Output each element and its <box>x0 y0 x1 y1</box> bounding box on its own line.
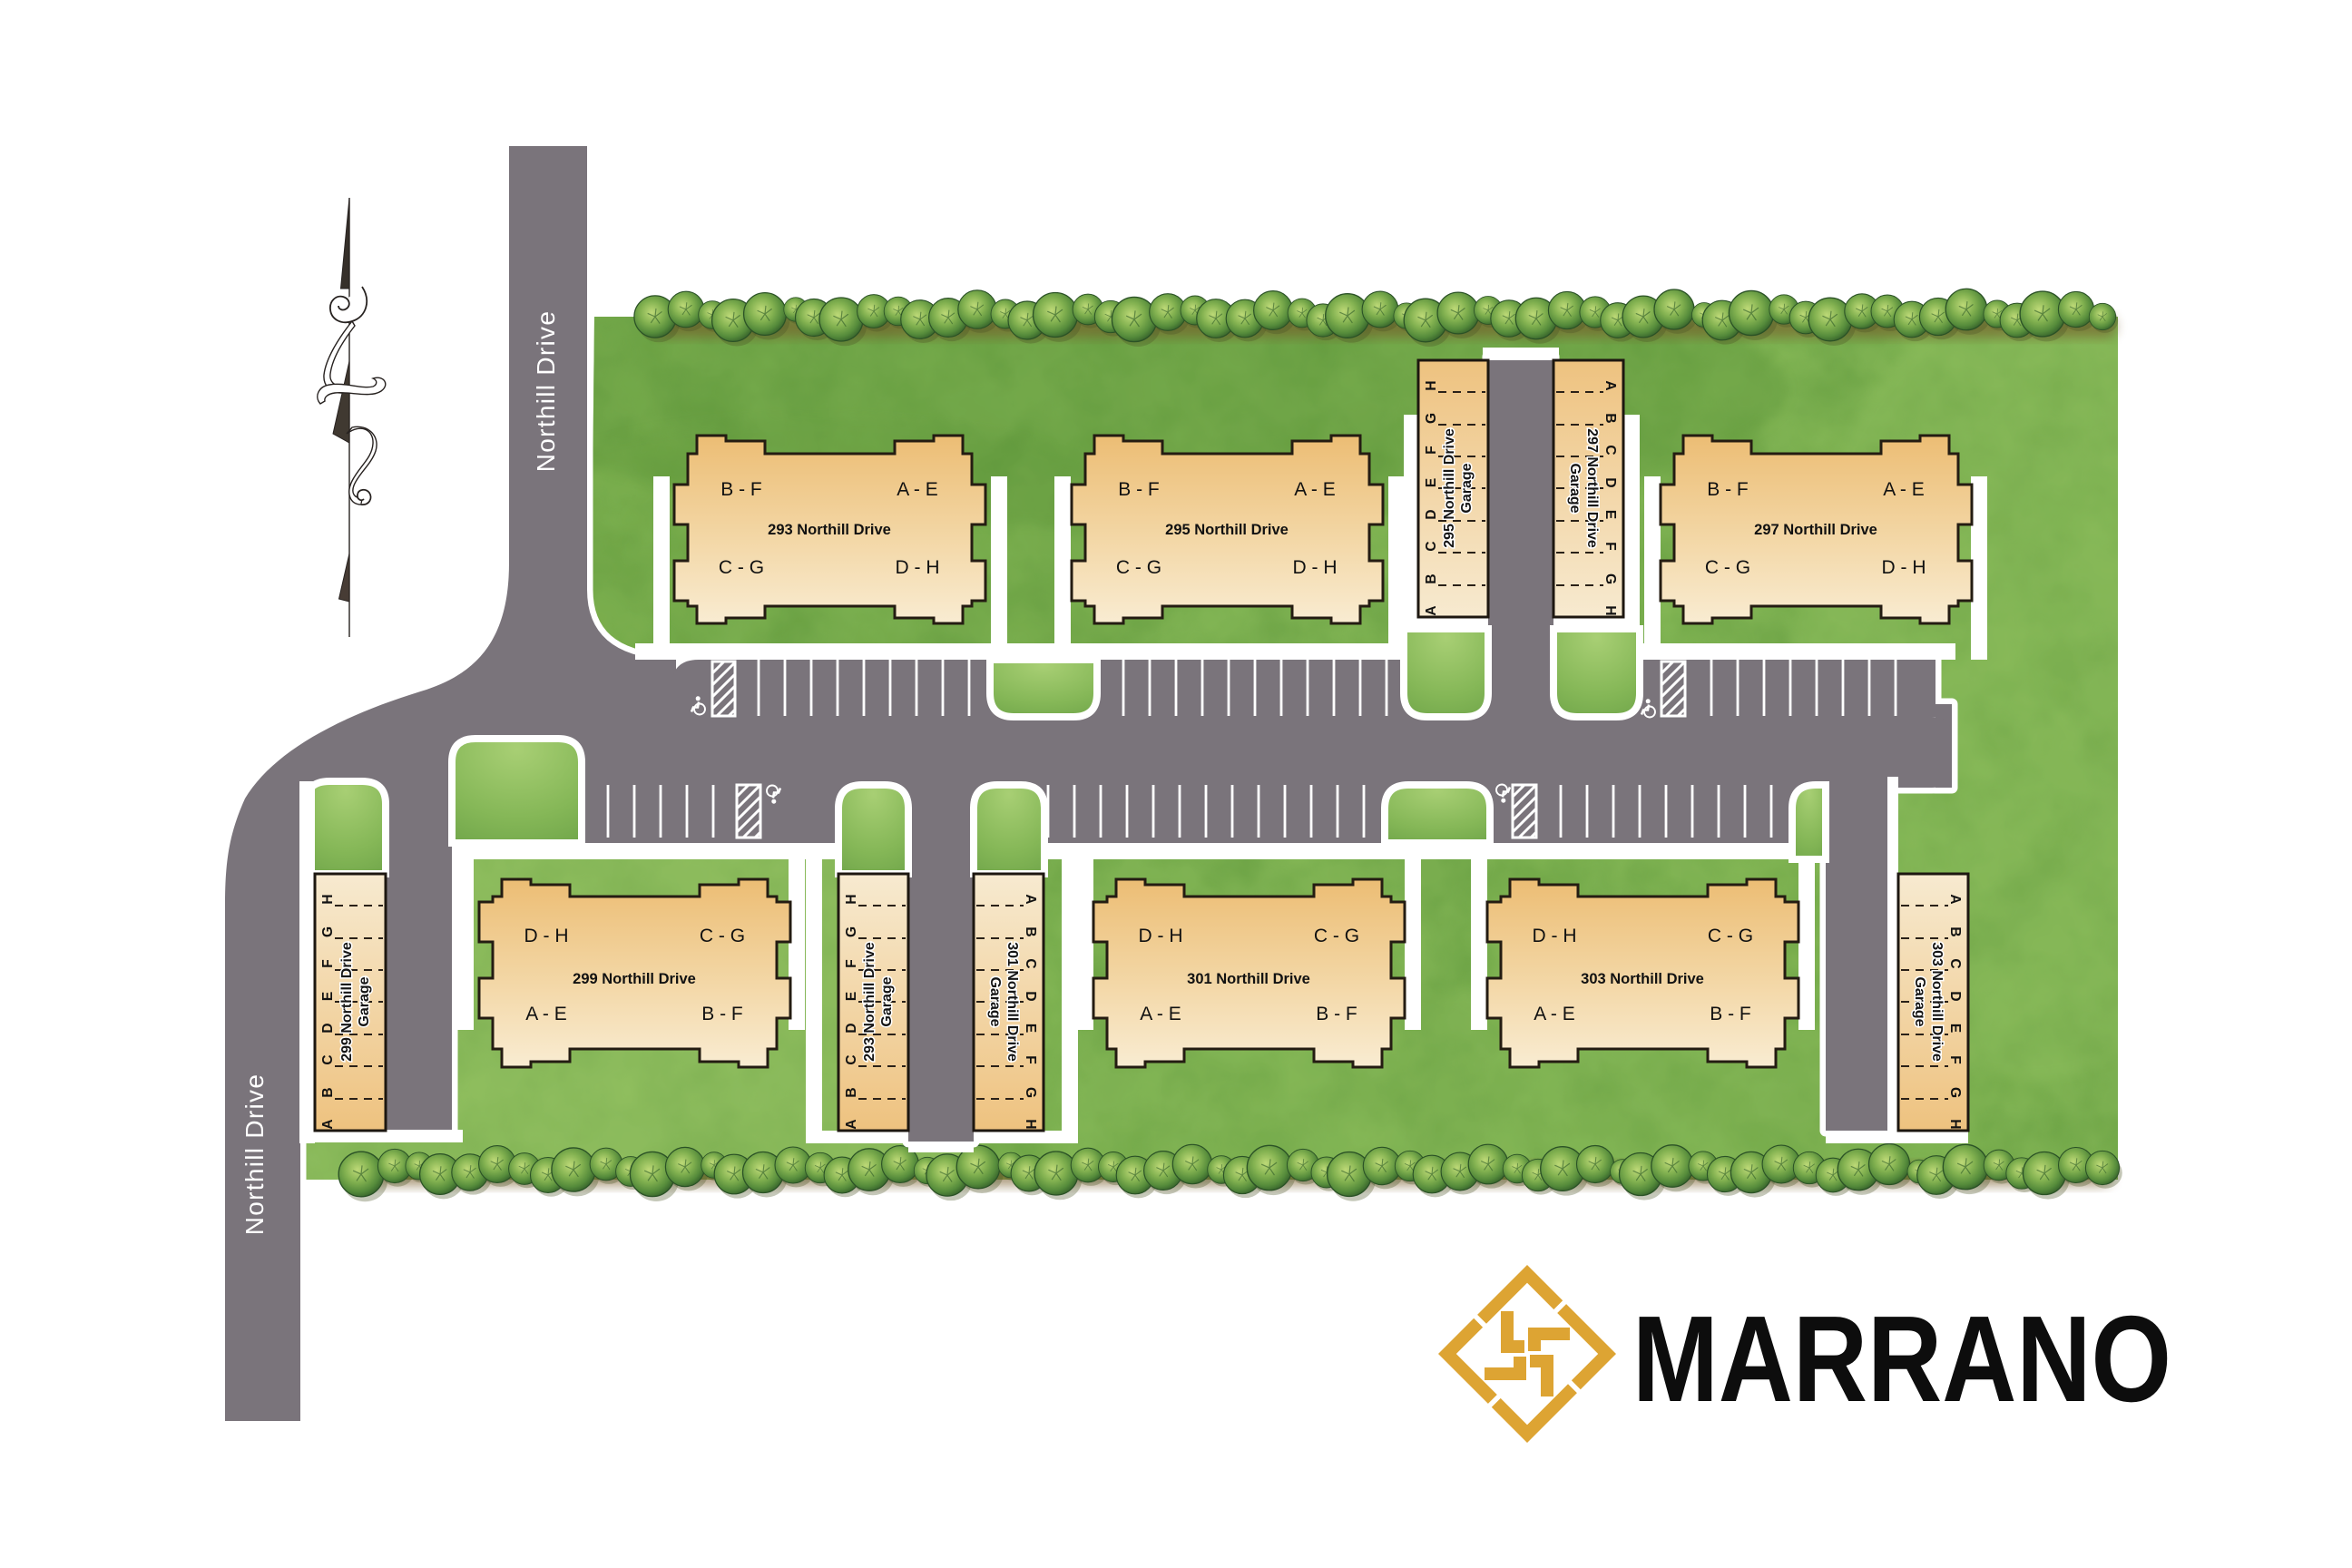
svg-text:D - H: D - H <box>1533 926 1577 946</box>
svg-text:B: B <box>844 1087 859 1097</box>
svg-text:D - H: D - H <box>1139 926 1183 946</box>
svg-text:A - E: A - E <box>1883 479 1925 500</box>
svg-text:E: E <box>320 992 336 1001</box>
svg-text:A - E: A - E <box>1140 1004 1181 1024</box>
svg-text:A: A <box>1023 894 1038 904</box>
svg-text:G: G <box>320 926 336 937</box>
svg-text:B - F: B - F <box>1710 1004 1751 1024</box>
svg-text:A: A <box>844 1119 859 1129</box>
svg-text:303 Northill Drive: 303 Northill Drive <box>1581 971 1704 987</box>
svg-text:G: G <box>1947 1087 1963 1098</box>
svg-text:C - G: C - G <box>700 926 745 946</box>
svg-text:C: C <box>1424 541 1439 551</box>
svg-text:301 Northill Drive: 301 Northill Drive <box>1187 971 1310 987</box>
svg-text:E: E <box>1023 1024 1038 1033</box>
svg-text:D - H: D - H <box>1293 557 1338 578</box>
svg-text:A: A <box>320 1119 336 1129</box>
svg-text:D: D <box>1602 477 1618 487</box>
svg-text:G: G <box>1602 573 1618 584</box>
svg-text:A - E: A - E <box>1294 479 1336 500</box>
svg-text:F: F <box>1023 1055 1038 1063</box>
svg-text:C - G: C - G <box>1708 926 1753 946</box>
svg-text:C: C <box>1023 958 1038 968</box>
svg-text:D: D <box>320 1023 336 1033</box>
svg-text:F: F <box>320 959 336 967</box>
svg-text:H: H <box>1023 1119 1038 1129</box>
svg-text:C: C <box>844 1054 859 1064</box>
svg-text:D: D <box>844 1023 859 1033</box>
svg-text:C - G: C - G <box>719 557 764 578</box>
svg-text:G: G <box>1023 1087 1038 1098</box>
svg-text:B: B <box>320 1087 336 1097</box>
svg-text:Northill Drive: Northill Drive <box>532 310 560 472</box>
svg-text:H: H <box>1602 605 1618 615</box>
svg-text:G: G <box>844 926 859 937</box>
svg-text:B - F: B - F <box>1118 479 1160 500</box>
svg-text:C: C <box>1602 445 1618 455</box>
svg-text:G: G <box>1424 413 1439 424</box>
svg-text:MARRANO: MARRANO <box>1632 1290 2171 1427</box>
svg-text:F: F <box>1424 446 1439 454</box>
svg-text:C: C <box>1947 958 1963 968</box>
svg-text:295 Northill Drive: 295 Northill Drive <box>1165 522 1289 538</box>
svg-text:D - H: D - H <box>896 557 940 578</box>
svg-text:D: D <box>1023 991 1038 1001</box>
svg-text:H: H <box>844 894 859 904</box>
svg-text:H: H <box>1947 1119 1963 1129</box>
svg-text:B: B <box>1023 926 1038 936</box>
svg-text:297 Northill Drive: 297 Northill Drive <box>1754 522 1877 538</box>
svg-text:A: A <box>1947 894 1963 904</box>
svg-text:A: A <box>1602 380 1618 390</box>
svg-text:D - H: D - H <box>1882 557 1926 578</box>
svg-text:B - F: B - F <box>701 1004 743 1024</box>
svg-text:B: B <box>1947 926 1963 936</box>
svg-text:C - G: C - G <box>1705 557 1750 578</box>
svg-text:C - G: C - G <box>1314 926 1359 946</box>
svg-text:E: E <box>1602 510 1618 519</box>
svg-text:F: F <box>1947 1055 1963 1063</box>
svg-text:A - E: A - E <box>1534 1004 1575 1024</box>
svg-text:E: E <box>1947 1024 1963 1033</box>
svg-text:D: D <box>1424 509 1439 519</box>
svg-text:H: H <box>320 894 336 904</box>
svg-text:Northill Drive: Northill Drive <box>240 1073 269 1235</box>
svg-text:D: D <box>1947 991 1963 1001</box>
svg-text:B - F: B - F <box>1316 1004 1357 1024</box>
svg-text:B - F: B - F <box>1707 479 1749 500</box>
svg-text:A: A <box>1424 605 1439 615</box>
svg-text:B - F: B - F <box>720 479 762 500</box>
svg-text:299 Northill Drive: 299 Northill Drive <box>573 971 696 987</box>
svg-text:H: H <box>1424 380 1439 390</box>
svg-text:B: B <box>1602 413 1618 423</box>
svg-text:A - E: A - E <box>525 1004 567 1024</box>
svg-text:E: E <box>1424 478 1439 487</box>
svg-text:C - G: C - G <box>1116 557 1161 578</box>
svg-text:F: F <box>1602 542 1618 550</box>
svg-text:F: F <box>844 959 859 967</box>
svg-text:293 Northill Drive: 293 Northill Drive <box>768 522 891 538</box>
svg-text:A - E: A - E <box>897 479 938 500</box>
svg-text:E: E <box>844 992 859 1001</box>
svg-text:B: B <box>1424 573 1439 583</box>
svg-text:C: C <box>320 1054 336 1064</box>
svg-text:D - H: D - H <box>524 926 569 946</box>
